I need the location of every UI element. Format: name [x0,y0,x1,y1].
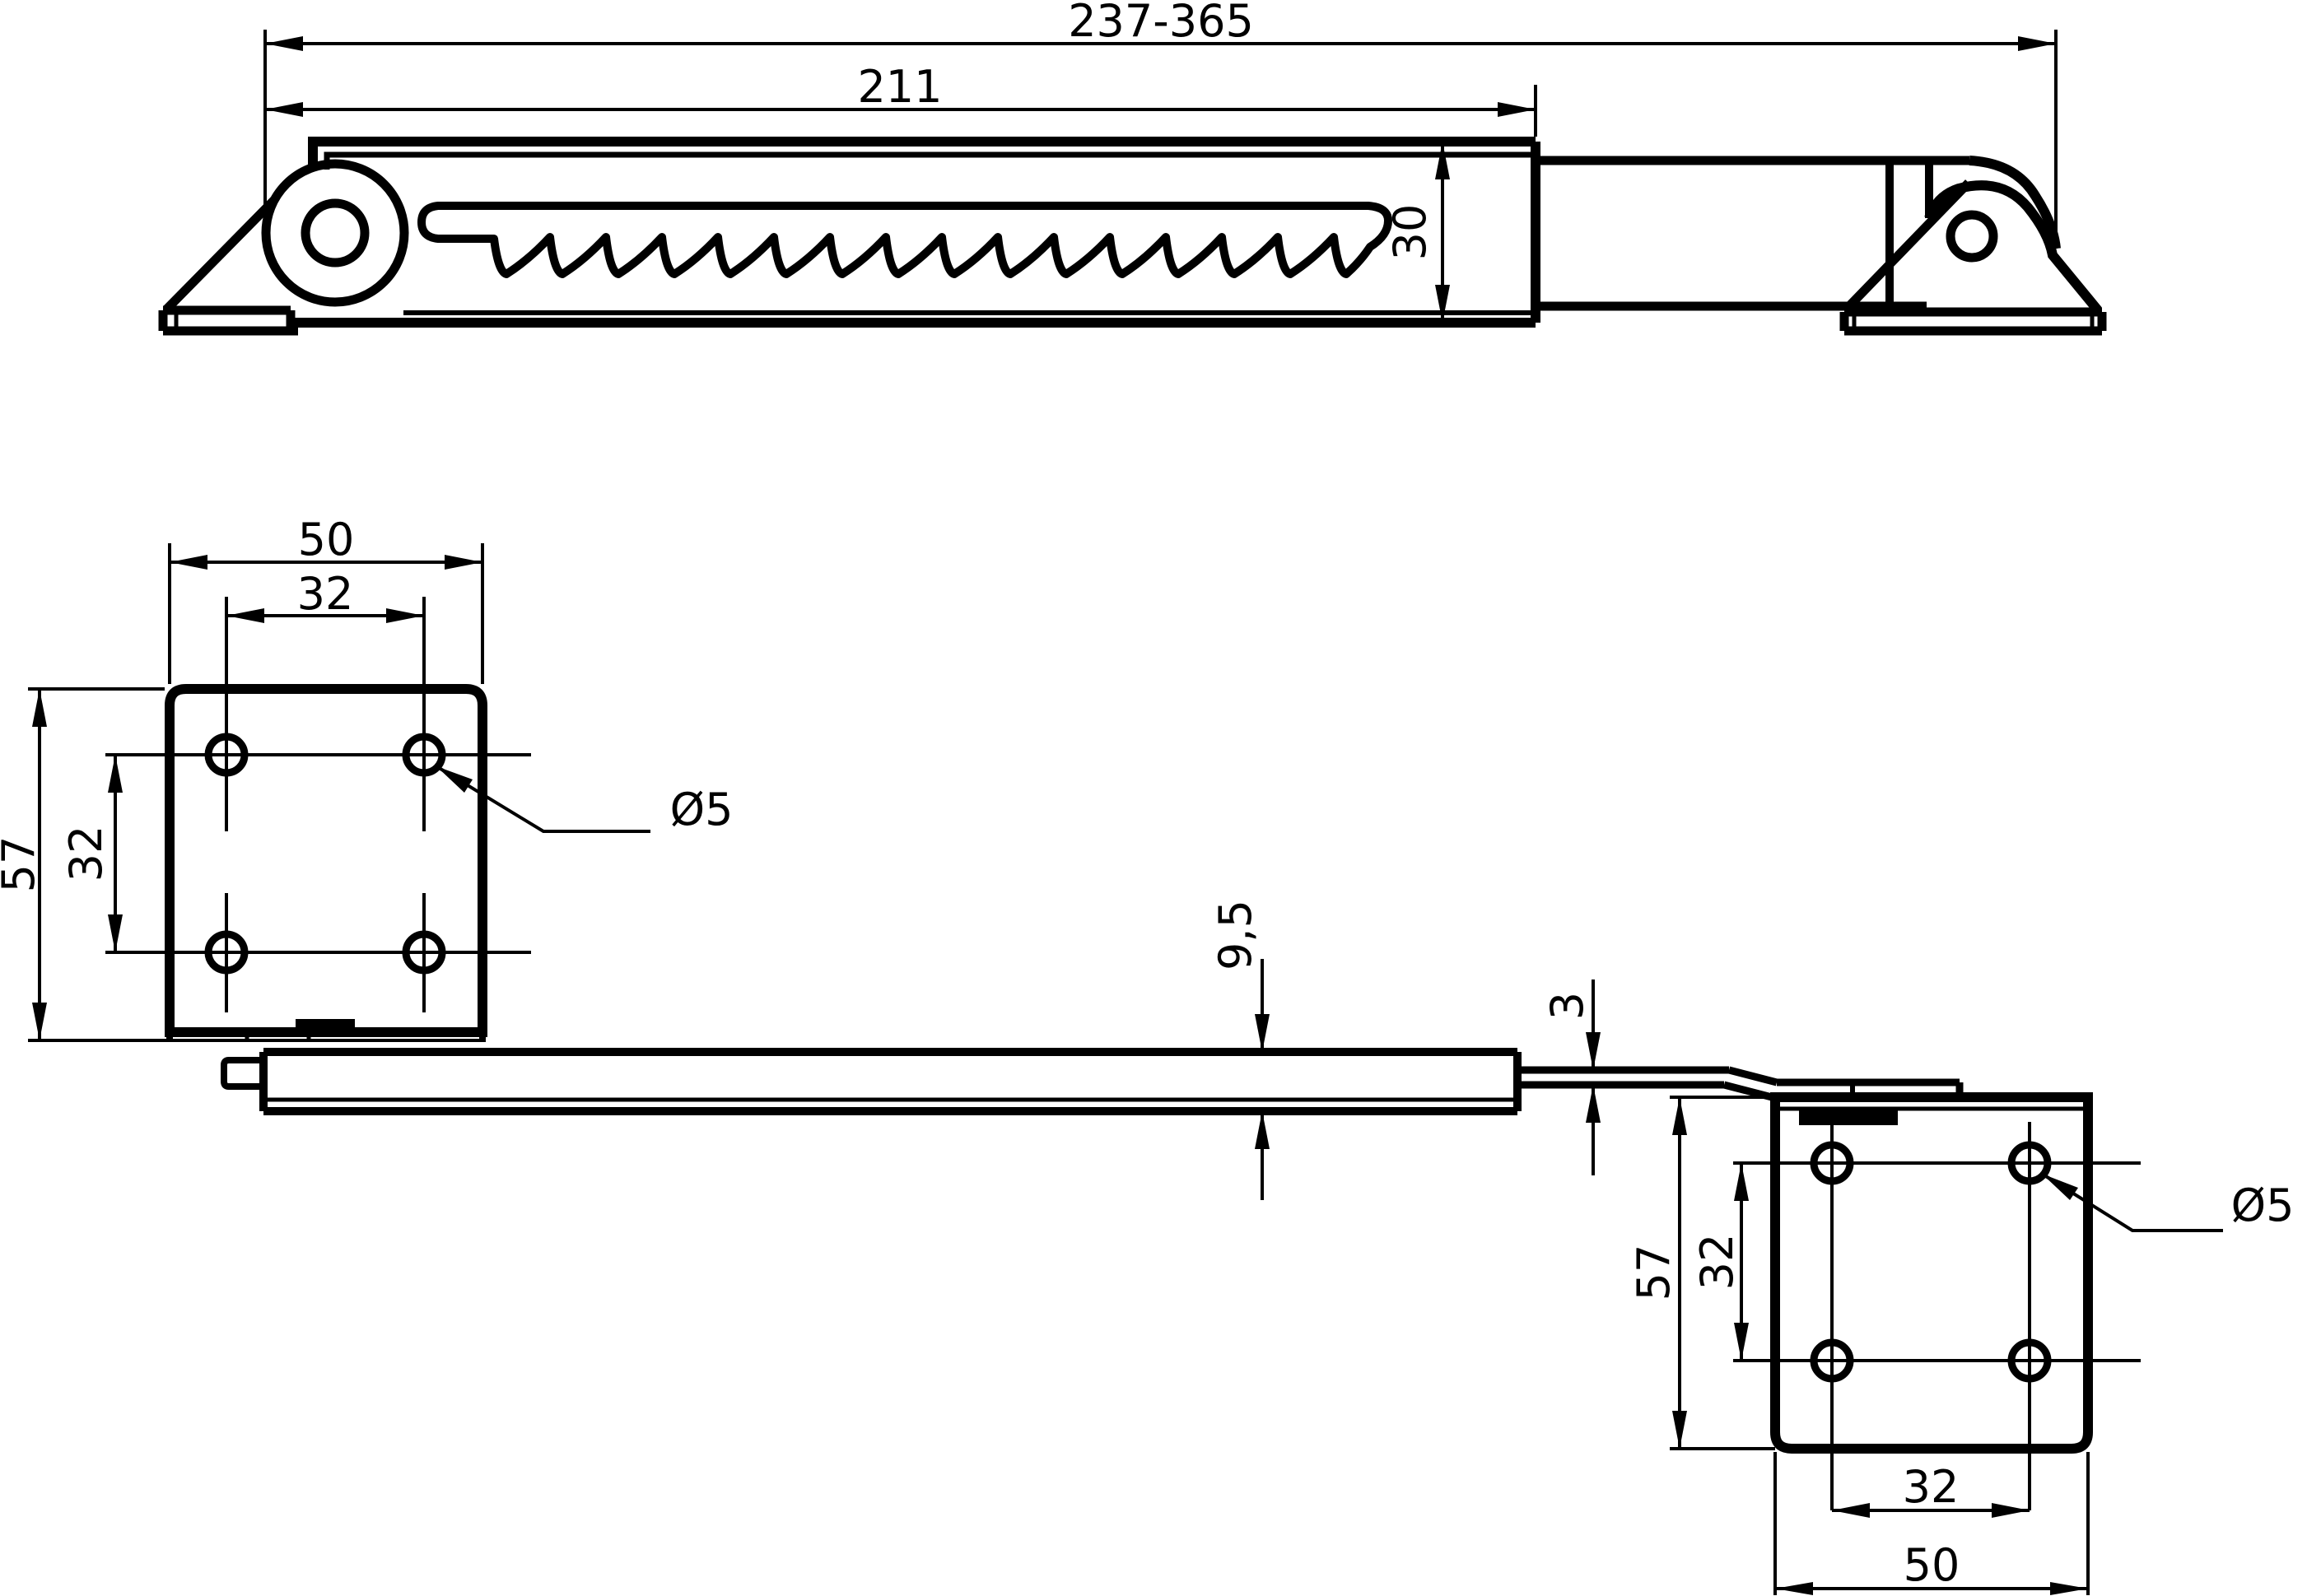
dim-left-hole-pitch-x: 32 [226,568,424,623]
technical-drawing-page: 237-365 211 30 [0,0,2321,1596]
arrow-down [1255,1014,1270,1052]
dim-right-hole-pitch-x: 32 [1832,1461,2030,1518]
dimension-text-overall: 237-365 [1068,0,1254,47]
arrow-right [386,608,424,623]
arrow-left [1775,1582,1813,1595]
dimension-text-right-width: 50 [1904,1539,1960,1591]
bar-left-hook [224,1060,263,1086]
arrow-left [265,36,303,51]
flat-bar [224,1052,1517,1111]
slotted-arm [291,142,1536,323]
dimension-text-arm-length: 211 [857,61,942,113]
arrow-down [1586,1032,1601,1070]
dimension-text-left-width: 50 [298,514,355,565]
callout-right-hole-diameter: Ø5 [2042,1174,2294,1231]
leader-line [2042,1174,2223,1231]
arrow-up [1255,1111,1270,1149]
arrow-right [1992,1503,2030,1518]
dimension-text-left-pitch-x: 32 [297,568,354,620]
arrow-left [226,608,264,623]
bracket-hole [1950,215,1993,258]
dimension-text-rod-thickness: 3 [1541,992,1593,1020]
dimension-text-left-pitch-y: 32 [60,826,112,882]
dim-right-hole-pitch-y: 32 [1691,1163,1749,1361]
right-mounting-plate [1733,1097,2141,1510]
arrow-right [445,555,482,570]
ratchet-slot [422,206,1388,274]
arrow-up [1734,1163,1749,1201]
dim-rod-thickness: 3 [1541,979,1601,1175]
arrow-right [2018,36,2056,51]
rod-jog-bottom [1724,1085,1772,1097]
arrow-left [170,555,207,570]
arrow-up [108,755,123,793]
arrow-right [2050,1582,2088,1595]
arrow-left [1832,1503,1870,1518]
dim-arm-length: 211 [265,61,1536,137]
bracket-base [163,310,298,331]
arrow-up [1672,1097,1687,1135]
lid-stay-dimension-drawing: 237-365 211 30 [0,0,2321,1596]
top-view: 237-365 211 30 [163,0,2102,331]
dim-overall-length: 237-365 [265,0,2056,249]
dim-left-hole-pitch-y: 32 [60,755,123,952]
arrow-right [1498,102,1536,117]
slide-rod [1536,161,1969,306]
fold-tab [1799,1110,1898,1125]
left-mounting-plate [28,597,531,1042]
leader-line [436,766,650,831]
leader-arrow [2042,1174,2078,1200]
arrow-down [1734,1323,1749,1361]
pivot-boss [266,164,404,302]
fold-tab [296,1019,355,1032]
hole-diameter-text: Ø5 [2231,1180,2295,1231]
left-pivot-bracket [163,164,404,331]
dimension-text-right-pitch-y: 32 [1691,1234,1743,1291]
dimension-text-left-height: 57 [0,836,44,893]
arrow-up [1435,142,1450,179]
arrow-up [32,689,47,727]
pivot-hole [305,203,365,263]
dimension-text-right-pitch-x: 32 [1903,1461,1960,1513]
leader-arrow [436,766,473,793]
dim-arm-height: 30 [1384,142,1487,323]
arm-top-inner-edge [327,155,1536,170]
dimension-text-bar-thickness: 9,5 [1209,900,1261,970]
rod-jog-top [1729,1070,1777,1082]
arrow-down [1672,1411,1687,1449]
hole-diameter-text: Ø5 [670,784,734,835]
arrow-down [1435,285,1450,323]
arrow-down [108,914,123,952]
arrow-left [265,102,303,117]
arrow-up [1586,1085,1601,1123]
arrow-down [32,1003,47,1040]
gusset-hypotenuse [166,200,274,309]
dimension-text-right-height: 57 [1628,1245,1680,1301]
flat-view: 50 32 57 32 Ø5 [0,514,2294,1595]
bracket-base [1844,312,2102,331]
dimension-text-arm-height: 30 [1384,204,1436,261]
